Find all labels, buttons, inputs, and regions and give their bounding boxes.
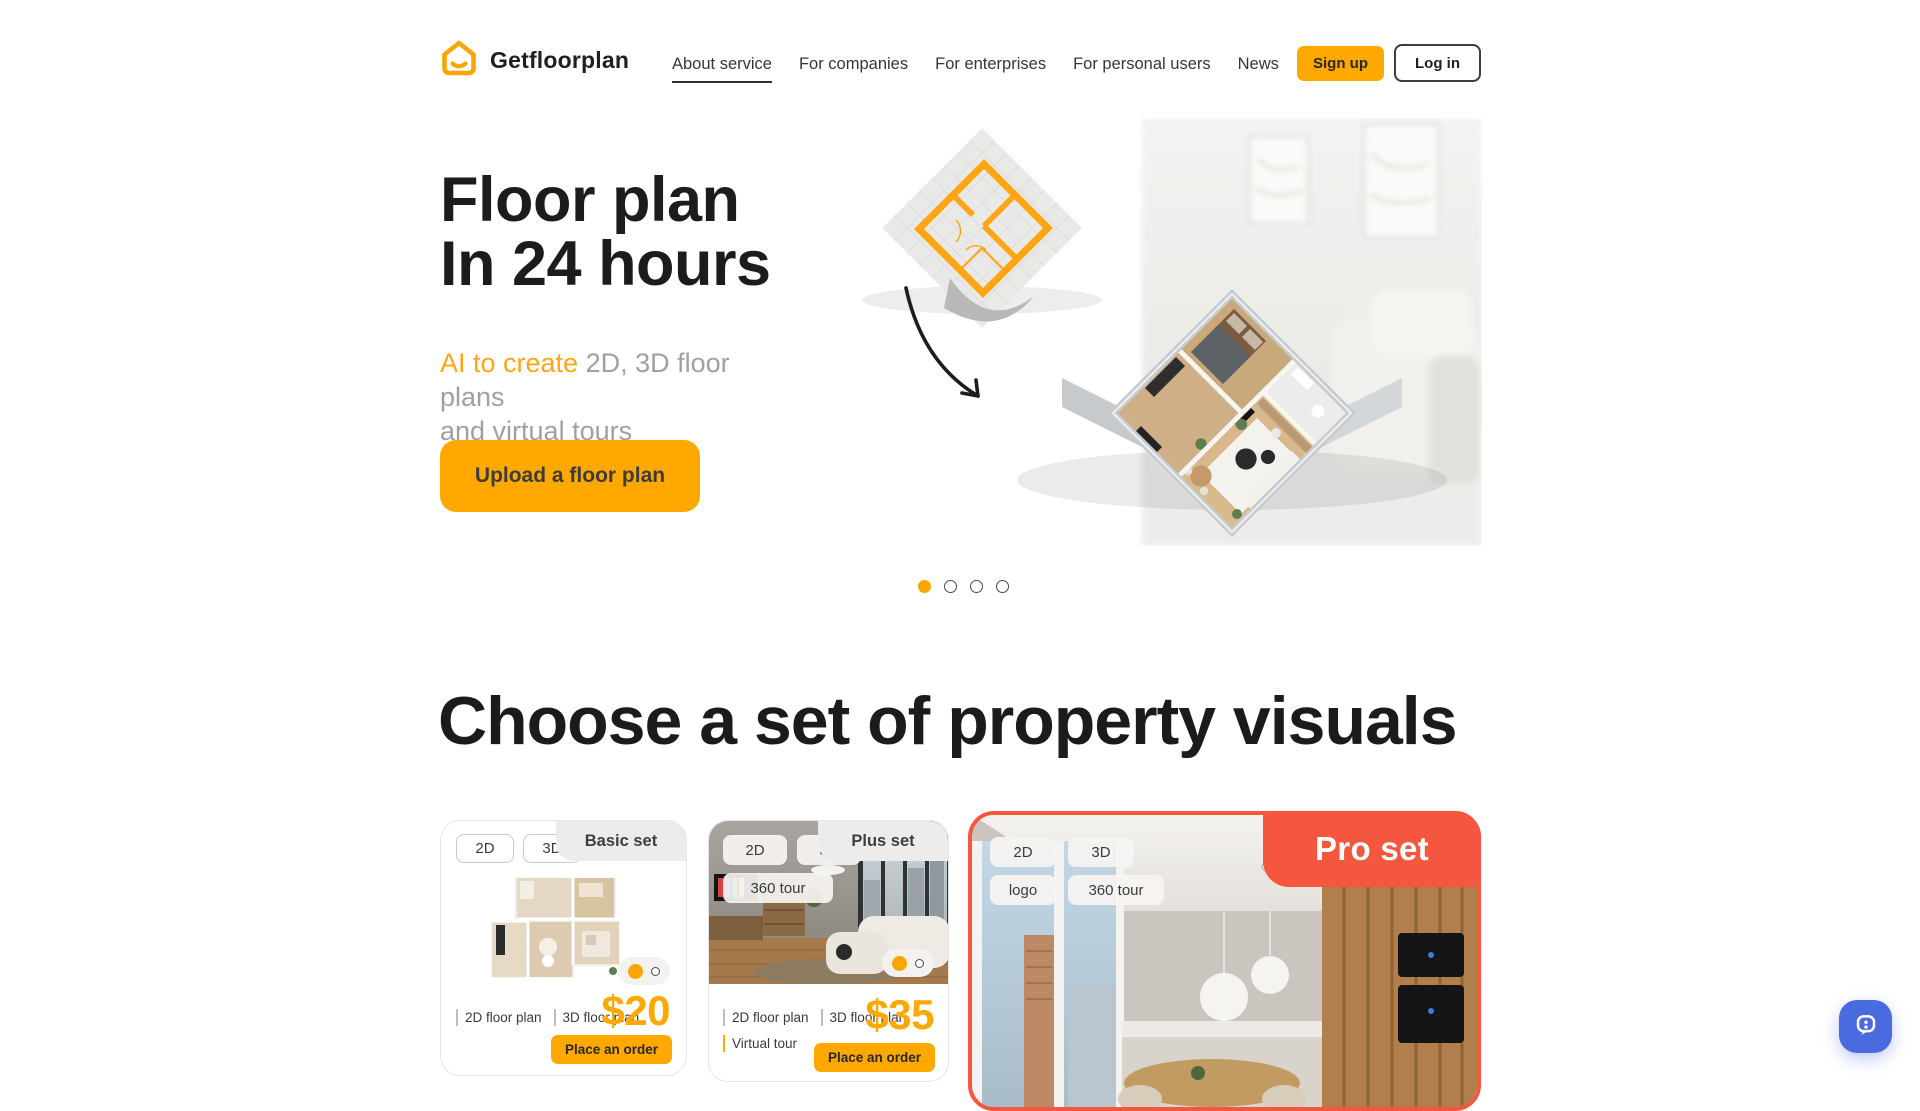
upload-floor-plan-button[interactable]: Upload a floor plan	[440, 440, 700, 512]
plus-360-tour-badge[interactable]: 360 tour	[723, 873, 833, 903]
plus-set-image-pager	[882, 949, 934, 977]
brand-logo[interactable]: Getfloorplan	[440, 40, 629, 81]
feature-virtual-tour: Virtual tour	[723, 1035, 797, 1052]
carousel-dot-2[interactable]	[944, 580, 957, 593]
basic-place-order-button[interactable]: Place an order	[551, 1035, 672, 1064]
nav-about-service[interactable]: About service	[672, 55, 772, 83]
plus-set-features-row2: Virtual tour	[723, 1035, 797, 1052]
carousel-dot-3[interactable]	[970, 580, 983, 593]
basic-2d-badge[interactable]: 2D	[456, 834, 514, 863]
feature-2d-floor-plan: 2D floor plan	[456, 1009, 542, 1026]
plus-2d-badge[interactable]: 2D	[723, 835, 787, 865]
hero-title-line1: Floor plan	[440, 165, 739, 235]
login-button[interactable]: Log in	[1394, 44, 1481, 82]
house-logo-icon	[440, 40, 478, 81]
feature-2d-floor-plan: 2D floor plan	[723, 1009, 809, 1026]
hero-title: Floor plan In 24 hours	[440, 168, 771, 296]
basic-pager-dot-active[interactable]	[628, 964, 643, 979]
basic-set-card: Basic set 2D 3D	[440, 820, 687, 1076]
pro-2d-badge[interactable]: 2D	[990, 837, 1056, 867]
main-nav: About service For companies For enterpri…	[672, 55, 1279, 83]
plus-pager-dot-active[interactable]	[892, 956, 907, 971]
basic-set-image-pager	[618, 957, 670, 985]
section-title: Choose a set of property visuals	[438, 682, 1457, 760]
hero-subtitle-highlight: AI to create	[440, 348, 578, 378]
basic-set-tab: Basic set	[556, 821, 686, 861]
plus-set-card: Plus set 2D 3D 360 tour 2D floor plan 3D…	[708, 820, 949, 1082]
nav-for-personal-users[interactable]: For personal users	[1073, 55, 1211, 81]
header: Getfloorplan About service For companies…	[0, 0, 1920, 100]
pro-3d-badge[interactable]: 3D	[1068, 837, 1134, 867]
nav-news[interactable]: News	[1238, 55, 1279, 81]
chat-button[interactable]	[1839, 1000, 1892, 1053]
pro-360-tour-badge[interactable]: 360 tour	[1068, 875, 1164, 905]
hero-subtitle: AI to create 2D, 3D floor plans and virt…	[440, 346, 800, 448]
plus-set-price: $35	[865, 991, 934, 1039]
basic-pager-dot[interactable]	[651, 967, 660, 976]
plus-place-order-button[interactable]: Place an order	[814, 1043, 935, 1072]
signup-button[interactable]: Sign up	[1297, 46, 1384, 81]
pro-set-card: Pro set 2D 3D logo 360 tour	[968, 811, 1481, 1111]
chat-bubble-icon	[1850, 1009, 1882, 1044]
pro-set-tab: Pro set	[1263, 811, 1481, 887]
plus-pager-dot[interactable]	[915, 959, 924, 968]
carousel-dot-4[interactable]	[996, 580, 1009, 593]
hero-visual	[822, 118, 1482, 546]
nav-for-companies[interactable]: For companies	[799, 55, 908, 81]
basic-set-price: $20	[601, 987, 670, 1035]
plus-set-tab: Plus set	[818, 821, 948, 861]
hero-title-line2: In 24 hours	[440, 229, 771, 299]
carousel-dot-1[interactable]	[918, 580, 931, 593]
pro-logo-badge[interactable]: logo	[990, 875, 1056, 905]
nav-for-enterprises[interactable]: For enterprises	[935, 55, 1046, 81]
floorplan-sketch	[862, 128, 1102, 328]
hero-carousel-dots	[918, 580, 1009, 593]
brand-name: Getfloorplan	[490, 47, 629, 74]
